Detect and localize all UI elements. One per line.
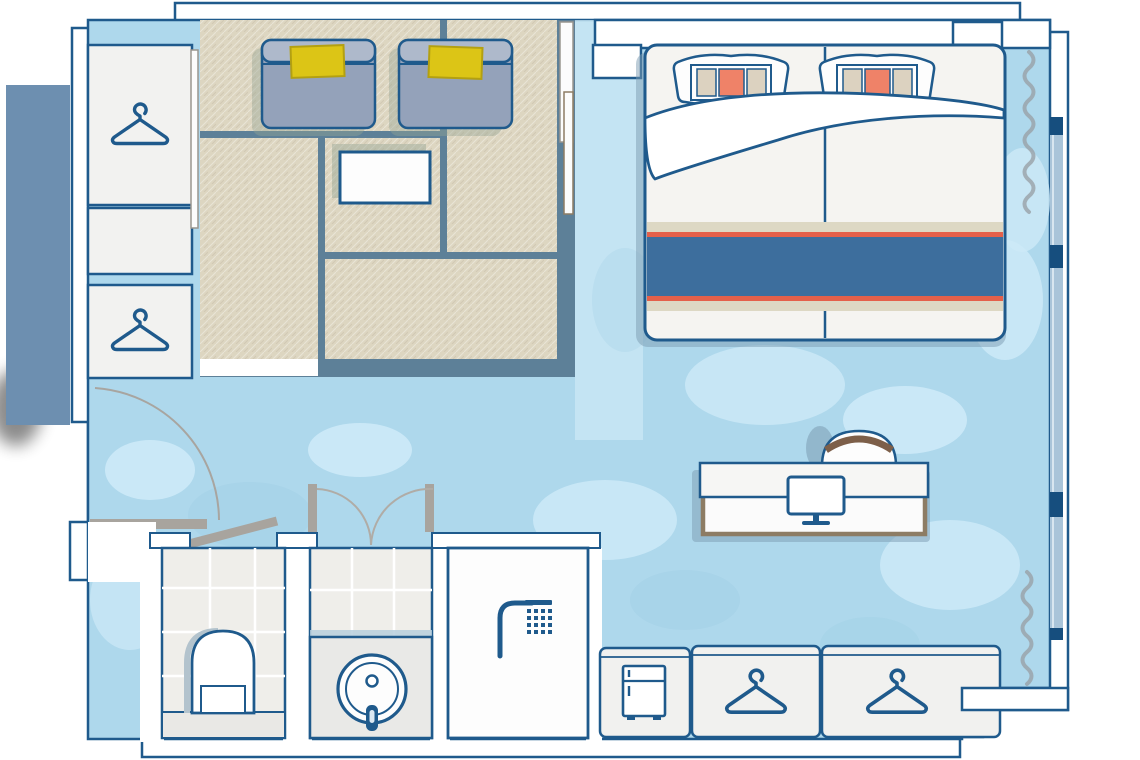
low-table xyxy=(332,144,430,203)
toilet-step xyxy=(162,712,285,738)
bed xyxy=(636,45,1006,347)
floor-plan-canvas xyxy=(0,0,1140,760)
wardrobe-section xyxy=(88,208,192,274)
vanity-room xyxy=(310,548,432,738)
window-glazing xyxy=(1050,117,1063,640)
wardrobe-section xyxy=(88,45,192,205)
platform-step xyxy=(200,359,318,376)
toilet-icon xyxy=(187,631,254,713)
fridge-icon xyxy=(623,666,665,720)
seat-cushion xyxy=(290,45,344,78)
shower-room xyxy=(448,548,588,738)
storage-row xyxy=(600,646,1000,737)
wall-cap xyxy=(432,533,600,548)
wall-cap xyxy=(277,533,317,548)
window-mullion xyxy=(1050,245,1063,268)
window-mullion xyxy=(1050,492,1063,517)
nightstand-left xyxy=(593,45,641,78)
exterior-corridor xyxy=(0,85,70,446)
floor-chair xyxy=(252,40,375,136)
tatami-mat xyxy=(325,259,557,359)
wall-notch xyxy=(962,688,1068,710)
tatami-mat xyxy=(200,138,318,359)
floor-plan-svg xyxy=(0,0,1140,760)
seat-cushion xyxy=(428,46,482,79)
closet-unit xyxy=(692,646,820,737)
toilet-room xyxy=(162,548,285,738)
wardrobe-column xyxy=(88,45,198,378)
floor-chair xyxy=(389,40,512,136)
window-mullion xyxy=(1050,117,1063,135)
desk xyxy=(700,463,928,535)
bed-runner xyxy=(647,222,1003,311)
entry-closet xyxy=(88,285,192,378)
wall-cap xyxy=(150,533,190,548)
window-mullion xyxy=(1050,628,1063,640)
exterior-band xyxy=(6,85,70,425)
wardrobe-sliding-track xyxy=(191,50,198,228)
window xyxy=(1050,117,1063,640)
